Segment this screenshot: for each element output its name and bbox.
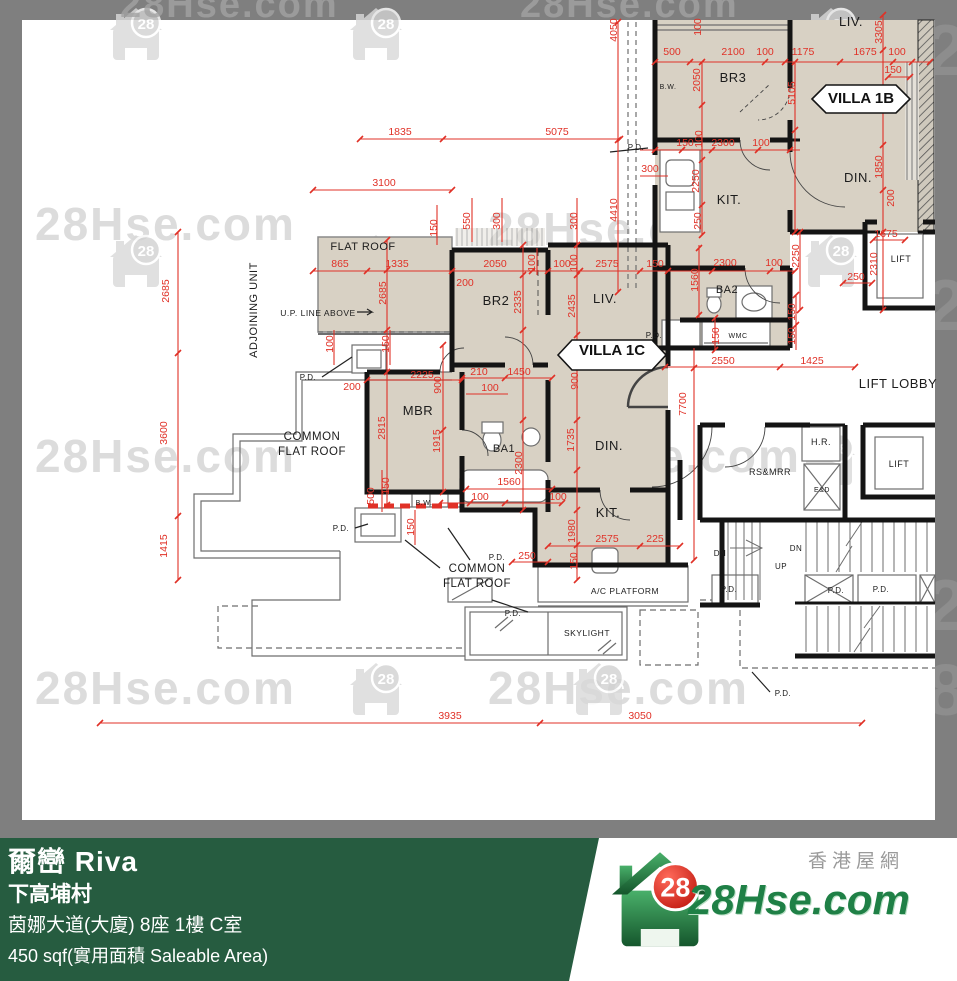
dim-label: 100 <box>692 18 704 36</box>
room-label: P.D. <box>775 689 792 698</box>
svg-text:28: 28 <box>378 16 395 33</box>
watermark-site-text: 28Hse.com <box>35 662 296 714</box>
dim-label: 1335 <box>385 258 409 270</box>
dim-label: 225 <box>646 533 664 545</box>
dim-label: 100 <box>471 491 489 503</box>
dim-label: 300 <box>491 212 503 230</box>
room-label: LIV. <box>839 14 863 29</box>
dim-label: 2685 <box>377 281 389 305</box>
property-info-panel: 爾巒 Riva 下高埔村 茵娜大道(大廈) 8座 1樓 C室 450 sqf(實… <box>0 838 620 981</box>
room-label: DN <box>790 544 803 553</box>
dim-label: 100 <box>526 254 538 272</box>
dim-label: 3305 <box>873 20 885 44</box>
room-label: P.D. <box>828 586 845 595</box>
dim-label: 100 <box>752 137 770 149</box>
dim-label: 500 <box>365 487 377 505</box>
room-label: P.D. <box>489 553 506 562</box>
floorplan-image: 28Hse.com28Hse.com28Hse.com28Hse.com28Hs… <box>0 0 957 838</box>
dim-label: 5105 <box>786 81 798 105</box>
dim-label: 100 <box>888 46 906 58</box>
room-label: P.D. <box>646 331 663 340</box>
dim-label: 250 <box>518 550 536 562</box>
dim-label: 2575 <box>595 533 619 545</box>
site-name: 28Hse.com <box>688 876 910 924</box>
room-label: B.W. <box>416 500 433 507</box>
dim-label: 250 <box>692 212 704 230</box>
room-label: FLAT ROOF <box>330 241 395 253</box>
room-label: FLAT ROOF <box>443 578 511 590</box>
svg-text:28: 28 <box>138 243 155 260</box>
dim-label: 2335 <box>512 290 524 314</box>
room-label: RS&MRR <box>749 467 791 477</box>
dim-label: 150 <box>786 327 798 345</box>
watermark-house-badge-icon: 28 <box>350 8 402 60</box>
dim-label: 500 <box>663 46 681 58</box>
room-label: KIT. <box>596 505 620 520</box>
dim-label: 2050 <box>483 258 507 270</box>
dim-label: 3600 <box>158 421 170 445</box>
dim-label: 150 <box>568 552 580 570</box>
28hse-logo: 香港屋網 28 28Hse.com <box>600 838 957 981</box>
room-label: B.W. <box>660 84 677 91</box>
estate-name: 爾巒 Riva <box>8 840 138 880</box>
room-label: SKYLIGHT <box>564 628 610 638</box>
room-label: LIFT LOBBY <box>859 376 937 391</box>
villa-tag-label: VILLA 1B <box>828 90 894 107</box>
dim-label: 200 <box>343 381 361 393</box>
room-label: BA2 <box>716 284 738 296</box>
dim-label: 150 <box>380 477 392 495</box>
dim-label: 2300 <box>711 137 735 149</box>
room-label: H.R. <box>811 437 831 447</box>
room-label: DIN. <box>595 438 623 453</box>
dim-label: 150 <box>676 137 694 149</box>
room-label: UP <box>775 562 787 571</box>
room-label: LIFT <box>891 254 912 264</box>
room-label: DN <box>714 549 727 558</box>
dim-label: 4410 <box>608 198 620 222</box>
room-label: P.D. <box>505 609 522 618</box>
room-label: P.D. <box>300 373 317 382</box>
dim-label: 2250 <box>690 169 702 193</box>
dim-label: 550 <box>461 212 473 230</box>
dim-label: 100 <box>693 130 705 148</box>
logo-badge-number: 28 <box>660 872 690 902</box>
floorplan-svg: 28Hse.com28Hse.com28Hse.com28Hse.com28Hs… <box>0 0 957 838</box>
room-label: BA1 <box>493 443 515 455</box>
room-label: P.D. <box>873 585 890 594</box>
dim-label: 300 <box>568 212 580 230</box>
room-label: A/C PLATFORM <box>591 586 659 596</box>
dim-label: 5075 <box>545 126 569 138</box>
dim-label: 2575 <box>595 258 619 270</box>
dim-label: 200 <box>885 189 897 207</box>
room-label: MBR <box>403 403 433 418</box>
room-label: P.D. <box>333 524 350 533</box>
dim-label: 200 <box>456 277 474 289</box>
watermark-house-badge-icon: 28 <box>350 663 402 715</box>
saleable-area: 450 sqf(實用面積 Saleable Area) <box>8 942 268 968</box>
dim-label: 300 <box>641 163 659 175</box>
dim-label: 1175 <box>792 46 815 58</box>
dim-label: 150 <box>710 327 722 345</box>
room-label: FLAT ROOF <box>278 446 346 458</box>
dim-label: 150 <box>380 335 392 353</box>
room-label: LIV. <box>593 291 617 306</box>
villa-tag-label: VILLA 1C <box>579 342 645 359</box>
site-chinese-name: 香港屋網 <box>808 846 904 873</box>
dim-label: 1850 <box>873 155 885 179</box>
svg-text:28: 28 <box>833 243 850 260</box>
dim-label: 250 <box>847 271 865 283</box>
dim-label: 1560 <box>689 268 701 292</box>
dim-label: 2300 <box>513 451 525 475</box>
dim-label: 4050 <box>608 18 620 42</box>
dim-label: 150 <box>786 303 798 321</box>
dim-label: 1675 <box>853 46 877 58</box>
dim-label: 7700 <box>677 392 689 416</box>
dim-label: 100 <box>549 491 567 503</box>
dim-label: 100 <box>765 257 783 269</box>
room-label: U.P. LINE ABOVE <box>280 308 355 318</box>
room-label: P.D. <box>628 143 645 152</box>
room-label: COMMON <box>449 563 506 575</box>
village-name: 下高埔村 <box>8 878 92 908</box>
dim-label: 100 <box>324 335 336 353</box>
dim-label: 2685 <box>160 279 172 303</box>
dim-label: 1915 <box>431 429 443 453</box>
dim-label: 2435 <box>566 294 578 318</box>
dim-label: 2300 <box>713 257 737 269</box>
dim-label: 150 <box>884 64 902 76</box>
dim-label: 210 <box>470 366 488 378</box>
room-label: E&D <box>814 487 830 494</box>
dim-label: 1415 <box>158 534 170 558</box>
room-label: DIN. <box>844 170 872 185</box>
dim-label: 1980 <box>566 519 578 543</box>
room-label: P.D. <box>721 585 738 594</box>
room-label: BR3 <box>720 70 747 85</box>
dim-label: 1835 <box>388 126 412 138</box>
room-label: COMMON <box>284 431 341 443</box>
dim-label: 1560 <box>497 476 521 488</box>
room-label: WMC <box>729 333 748 340</box>
watermark-site-text: 28Hse.com <box>35 198 296 250</box>
dim-label: 900 <box>432 376 444 394</box>
dim-label: 100 <box>756 46 774 58</box>
watermark-house-badge-icon: 28 <box>573 663 625 715</box>
address-line: 茵娜大道(大廈) 8座 1樓 C室 <box>8 910 242 937</box>
dim-label: 3935 <box>438 710 462 722</box>
dim-label: 3050 <box>628 710 652 722</box>
dim-label: 2100 <box>721 46 745 58</box>
bottom-frame-strip <box>0 820 957 838</box>
dim-label: 1735 <box>565 428 577 452</box>
dim-label: 900 <box>569 372 581 390</box>
dim-label: 865 <box>331 258 349 270</box>
room-label: LIFT <box>889 459 910 469</box>
dim-label: 1450 <box>507 366 531 378</box>
dim-label: 150 <box>646 258 664 270</box>
dim-label: 2815 <box>376 416 388 440</box>
svg-text:28: 28 <box>601 671 618 688</box>
dim-label: 2225 <box>410 369 434 381</box>
dim-label: 2250 <box>790 244 802 268</box>
dim-label: 2550 <box>711 355 735 367</box>
dim-label: 150 <box>405 518 417 536</box>
watermark-house-badge-icon: 28 <box>110 235 162 287</box>
dim-label: 2050 <box>691 68 703 92</box>
dim-label: 100 <box>481 382 499 394</box>
dim-label: 100 <box>568 254 580 272</box>
svg-text:28: 28 <box>378 671 395 688</box>
room-label: BR2 <box>483 293 510 308</box>
dim-label: 1425 <box>800 355 824 367</box>
room-label: ADJOINING UNIT <box>248 262 260 358</box>
dim-label: 2310 <box>868 252 880 276</box>
room-label: KIT. <box>717 192 741 207</box>
dim-label: 3100 <box>372 177 396 189</box>
property-info-bar: 爾巒 Riva 下高埔村 茵娜大道(大廈) 8座 1樓 C室 450 sqf(實… <box>0 838 957 981</box>
dim-label: 150 <box>428 219 440 237</box>
dim-label: 1675 <box>874 228 898 240</box>
